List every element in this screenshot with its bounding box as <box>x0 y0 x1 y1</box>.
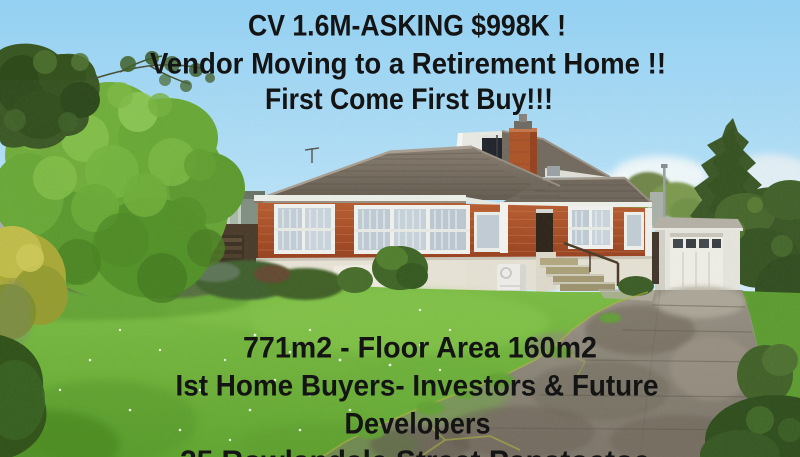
svg-text:Vendor Moving to a Retirement: Vendor Moving to a Retirement Home !! <box>150 48 666 81</box>
svg-text:Developers: Developers <box>345 408 491 441</box>
svg-text:771m2 - Floor Area 160m2: 771m2 - Floor Area 160m2 <box>243 332 597 365</box>
svg-text:CV 1.6M-ASKING $998K !: CV 1.6M-ASKING $998K ! <box>248 10 566 43</box>
svg-text:25 Rowlandale Street Papatoeto: 25 Rowlandale Street Papatoetoe <box>180 445 650 457</box>
svg-text:Ist Home Buyers- Investors & F: Ist Home Buyers- Investors & Future <box>176 370 659 403</box>
svg-text:First Come First Buy!!!: First Come First Buy!!! <box>265 83 553 116</box>
